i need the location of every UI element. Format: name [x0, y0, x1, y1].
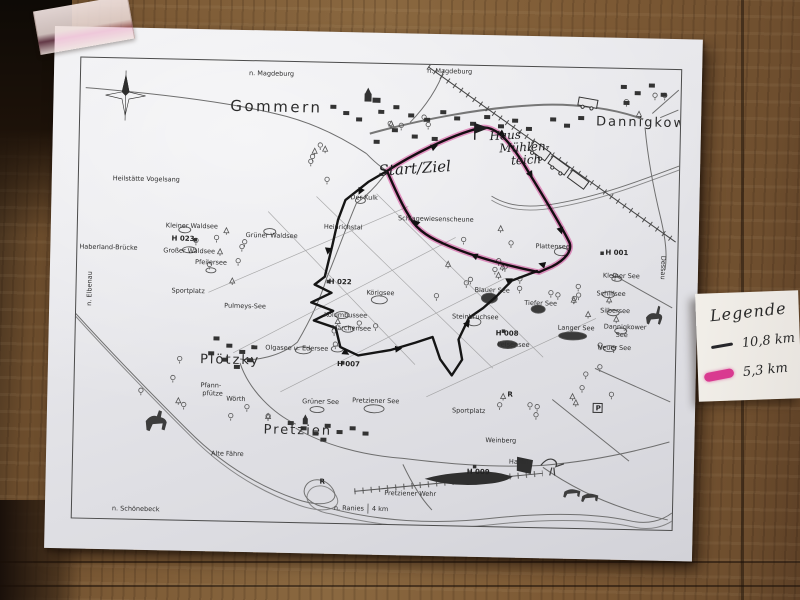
label-hafen: Hafen	[509, 458, 528, 466]
label-sportplatz-east: Sportplatz	[452, 406, 486, 415]
label-maerchensee: Märchensee	[332, 324, 371, 333]
map-labels: n. Magdeburg n. Magdeburg Gommern Dannig…	[74, 60, 681, 525]
map-frame: P R R n. Magdeburg n. Magdeburg Gommern …	[71, 57, 683, 532]
label-town-ploetzky: Plötzky	[200, 352, 260, 368]
legend-title: Legende	[709, 297, 799, 325]
label-heilstaette: Heilstätte Vogelsang	[113, 174, 180, 183]
parking-marker: P	[593, 403, 602, 412]
pink-route-dash-icon	[704, 368, 735, 383]
parking-icon: P	[596, 404, 601, 412]
label-n-magdeburg-east: n. Magdeburg	[427, 67, 472, 76]
handwriting-start-ziel: Start/Ziel	[378, 157, 452, 180]
legend-item-pink-route: 5,3 km	[711, 359, 800, 383]
label-n-elbenau: n. Elbenau	[85, 271, 94, 306]
label-h007: H 007	[337, 360, 360, 368]
label-gruener-see: Grüner See	[302, 397, 339, 406]
label-4km: 4 km	[372, 505, 388, 513]
label-n-schoenebeck: n. Schönebeck	[112, 504, 160, 513]
label-neuer-see: Neuer See	[597, 343, 631, 352]
paper-sheet: P R R n. Magdeburg n. Magdeburg Gommern …	[44, 26, 703, 561]
label-kleiner-waldsee: Kleiner Waldsee	[166, 221, 218, 230]
label-grosser-waldsee: Großer Waldsee	[163, 246, 215, 255]
label-weinberg: Weinberg	[485, 436, 516, 445]
label-h001: H 001	[605, 249, 628, 257]
forest-trees	[138, 82, 667, 429]
wood-plank-seam	[0, 585, 800, 587]
label-der-kulk: Der Kulk	[350, 193, 378, 202]
bus-icon	[577, 97, 598, 111]
rest-area-marker: R	[319, 478, 325, 486]
label-pfuetze: pfütze	[202, 389, 223, 397]
label-woerth: Wörth	[226, 395, 246, 403]
label-kolumbussee: Kolumbussee	[324, 311, 367, 320]
deer-icon	[646, 305, 663, 324]
label-pulmeys-see: Pulmeys-See	[224, 302, 266, 311]
map-drawing: P R R n. Magdeburg n. Magdeburg Gommern …	[72, 58, 682, 530]
label-koerigsee: Körigsee	[366, 289, 394, 298]
label-steinbruchsee: Steinbruchsee	[452, 312, 499, 321]
label-town-dannigkow: Dannigkow	[596, 114, 681, 131]
label-pretziener-wehr: Pretziener Wehr	[384, 489, 436, 498]
rest-area-marker: R	[507, 391, 513, 399]
horse-rider-icon	[146, 410, 167, 431]
label-gruener-waldsee: Grüner Waldsee	[246, 231, 298, 240]
label-dessau: Dessau	[659, 256, 667, 280]
label-olgasee-edersee: Olgasee u. Edersee	[265, 343, 328, 352]
label-scheune: Schlagewiesenscheune	[398, 214, 474, 224]
label-pfeilersee: Pfeilersee	[195, 258, 227, 267]
label-felsensee: Felsensee	[497, 340, 529, 349]
label-h009: H 009	[467, 468, 490, 476]
label-n-ranies: n. Ranies	[334, 504, 365, 513]
label-town-pretzien: Pretzien	[263, 422, 332, 438]
label-plattensee: Plattensee	[535, 242, 569, 251]
wood-plank-seam	[0, 561, 800, 563]
compass-rose-icon	[105, 70, 146, 121]
label-h023: H 023	[171, 234, 194, 242]
label-blauer-see: Blauer See	[474, 286, 509, 295]
label-haberland-bruecke: Haberland-Brücke	[79, 243, 137, 252]
church-gommern-icon	[364, 88, 380, 103]
label-n-magdeburg-west: n. Magdeburg	[249, 69, 294, 78]
label-langer-see: Langer See	[558, 324, 595, 333]
legend-item-black-route: 10,8 km	[710, 330, 800, 354]
legend-label-10-8km: 10,8 km	[741, 331, 796, 351]
label-sportplatz-west: Sportplatz	[171, 286, 205, 295]
label-h008: H 008	[496, 329, 519, 337]
label-heinrichstal: Heinrichstal	[324, 223, 363, 232]
label-schilfsee: Schilfsee	[596, 289, 625, 298]
legend-label-5-3km: 5,3 km	[742, 360, 788, 380]
cows-icon	[563, 489, 598, 502]
label-alte-faehre: Alte Fähre	[211, 449, 244, 458]
label-h022: H 022	[329, 278, 352, 286]
photo-of-map-on-wooden-wall: P R R n. Magdeburg n. Magdeburg Gommern …	[0, 0, 800, 600]
label-kleiner-see: Kleiner See	[603, 272, 640, 281]
legend-card: Legende 10,8 km 5,3 km	[695, 290, 800, 402]
label-dannigkower-see-2: See	[616, 331, 628, 339]
label-silbersee: Silbersee	[600, 306, 630, 315]
label-pretziener-see: Pretziener See	[352, 396, 399, 405]
handwriting-teich: teich	[511, 152, 542, 167]
black-route-dash-icon	[711, 342, 733, 349]
label-tiefer-see: Tiefer See	[523, 299, 557, 308]
label-town-gommern: Gommern	[230, 97, 323, 117]
